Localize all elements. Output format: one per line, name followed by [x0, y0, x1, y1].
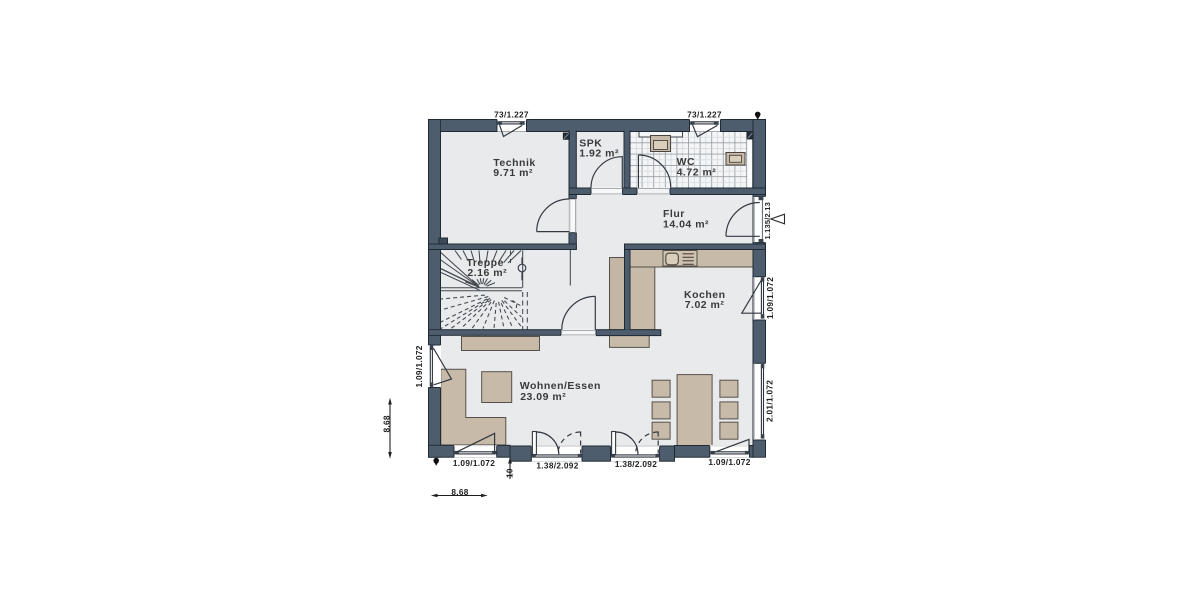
svg-text:1.92 m²: 1.92 m²	[579, 148, 619, 160]
svg-text:10: 10	[504, 468, 514, 478]
svg-text:4.72 m²: 4.72 m²	[677, 167, 717, 179]
svg-text:1.09/1.072: 1.09/1.072	[708, 457, 750, 467]
svg-text:1.38/2.092: 1.38/2.092	[536, 461, 578, 471]
svg-text:23.09 m²: 23.09 m²	[520, 391, 566, 403]
svg-text:2.16 m²: 2.16 m²	[467, 267, 507, 279]
svg-text:1.09/1.072: 1.09/1.072	[765, 277, 775, 319]
svg-text:14.04 m²: 14.04 m²	[663, 218, 709, 230]
svg-text:9.71 m²: 9.71 m²	[493, 167, 533, 179]
svg-text:1.135/2.13: 1.135/2.13	[763, 202, 772, 239]
svg-text:1.09/1.072: 1.09/1.072	[453, 458, 495, 468]
svg-text:73/1.227: 73/1.227	[687, 110, 722, 120]
svg-text:1.09/1.072: 1.09/1.072	[414, 345, 424, 387]
svg-text:73/1.227: 73/1.227	[494, 110, 529, 120]
svg-text:1.38/2.092: 1.38/2.092	[615, 459, 657, 469]
svg-text:7.02 m²: 7.02 m²	[685, 299, 725, 311]
svg-text:2.01/1.072: 2.01/1.072	[765, 380, 775, 422]
